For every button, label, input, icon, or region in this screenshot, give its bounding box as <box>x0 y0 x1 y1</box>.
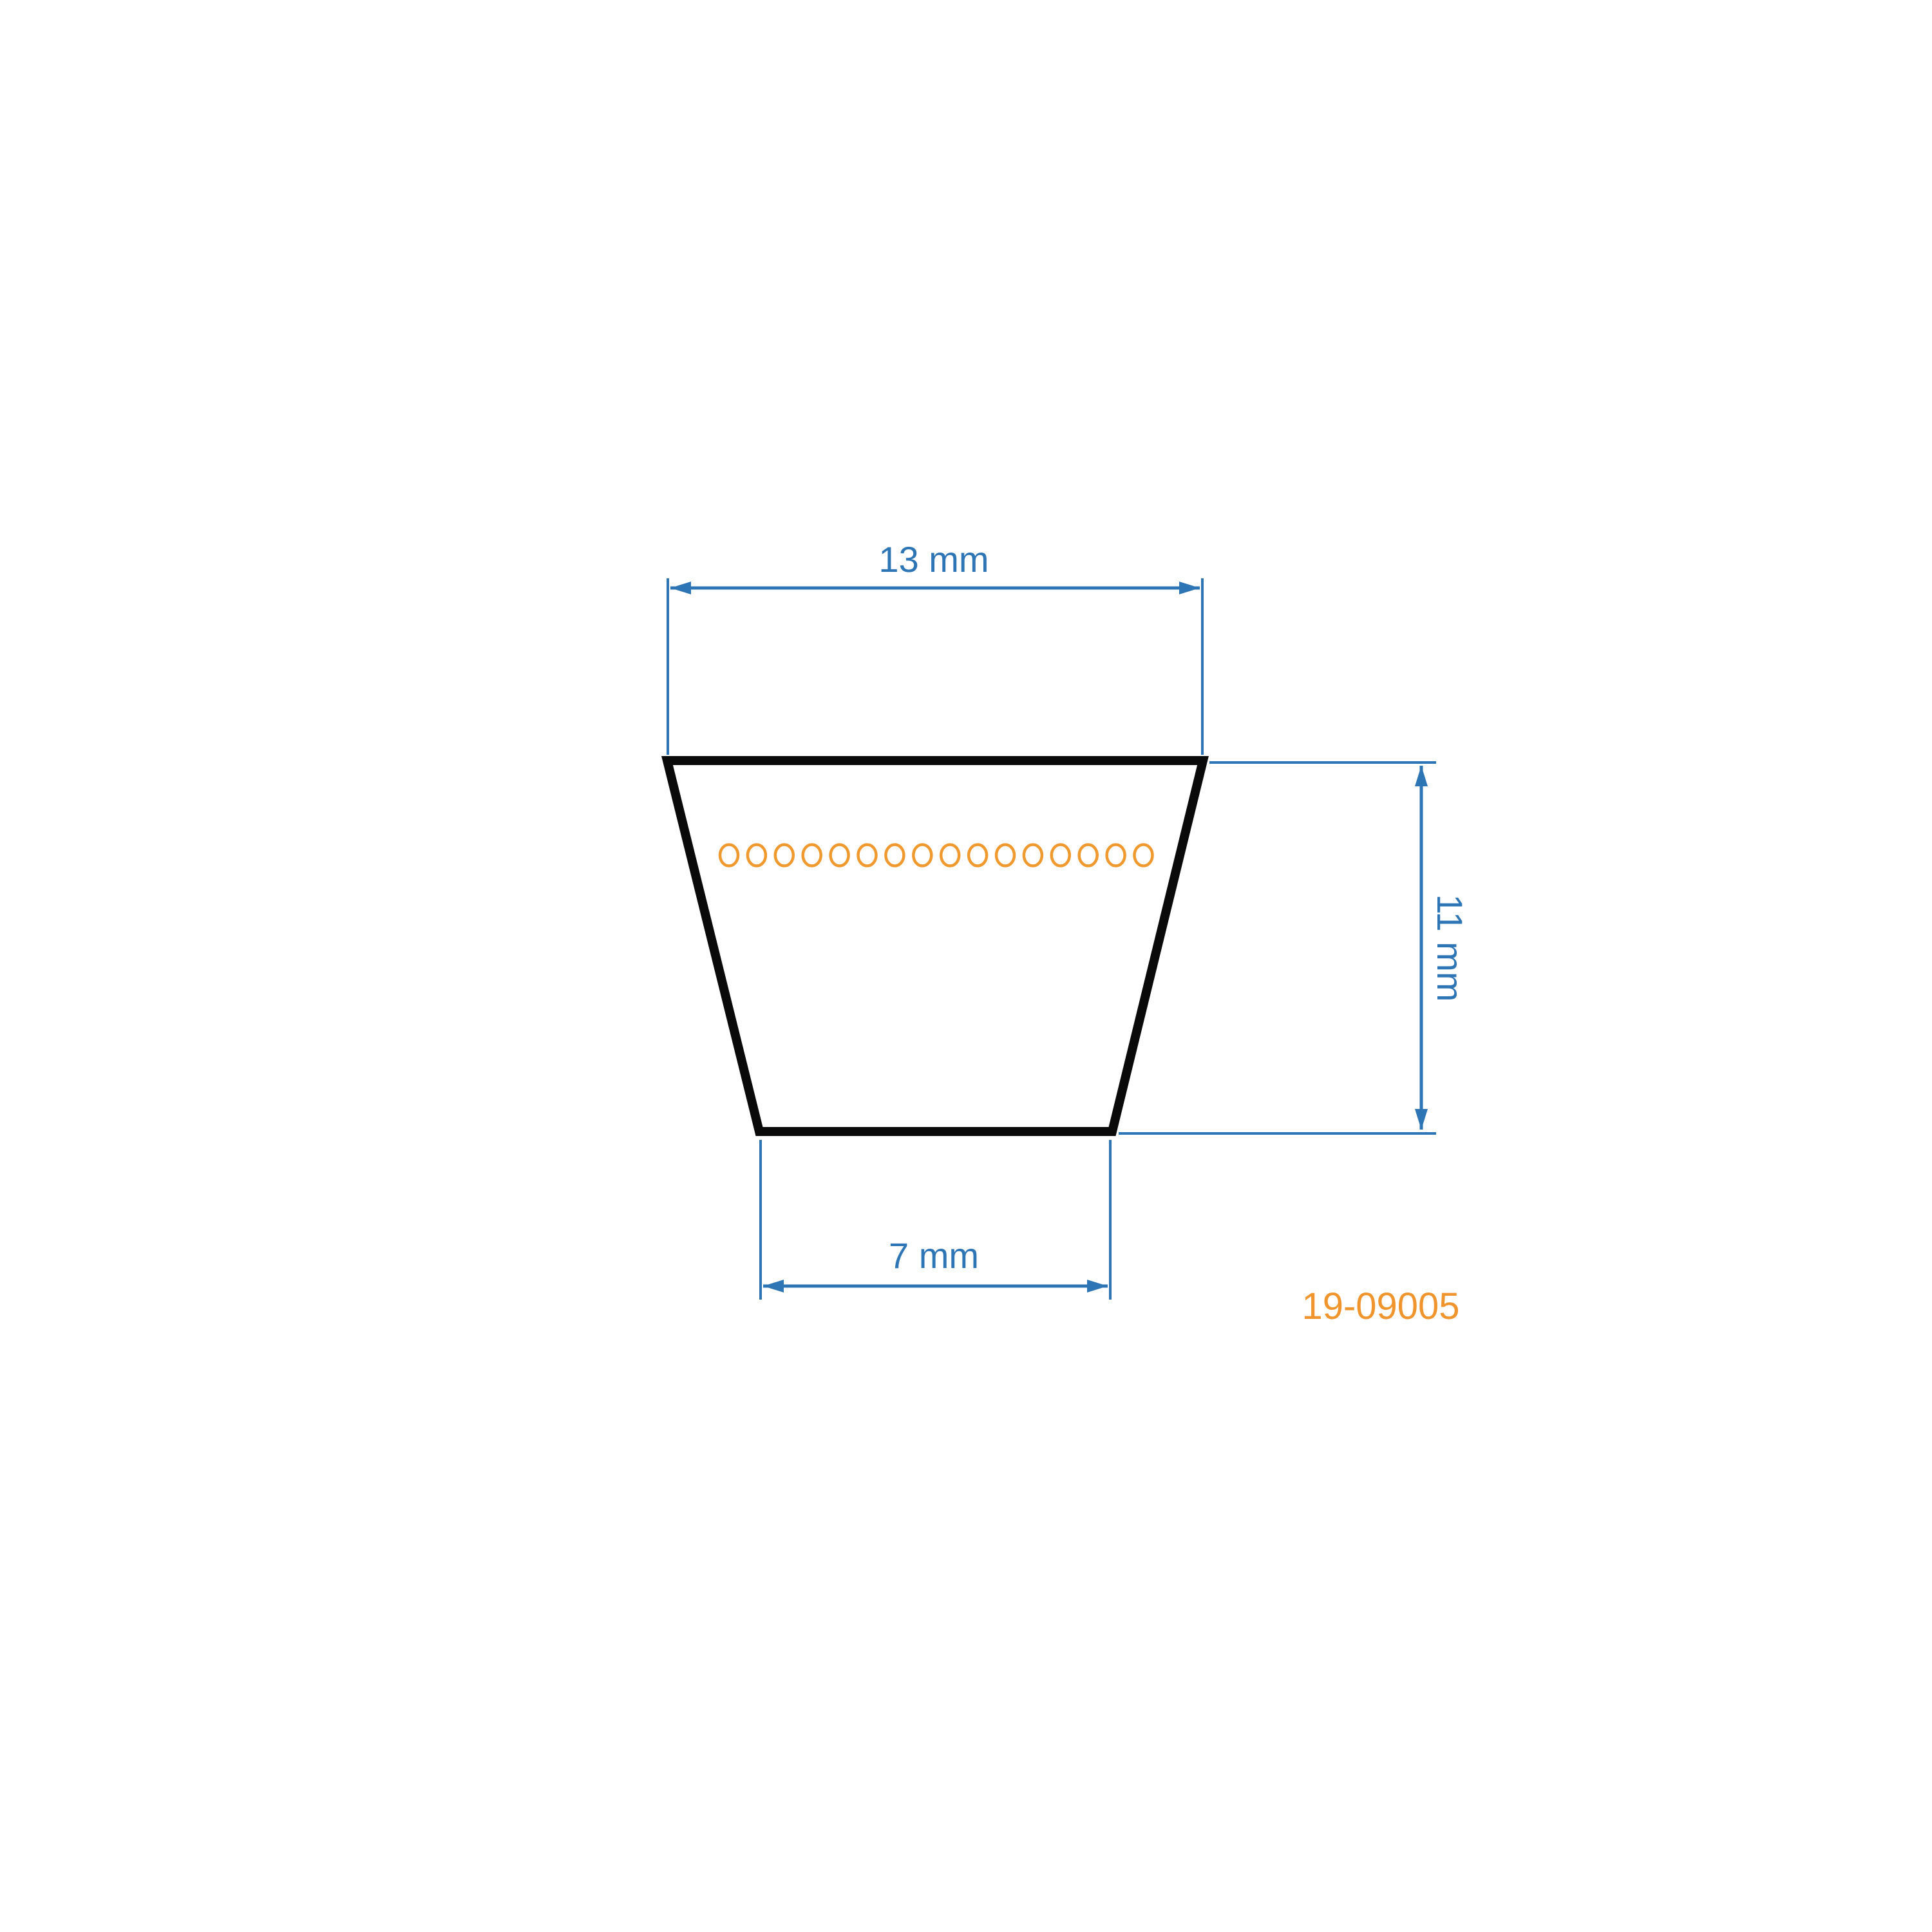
diagram-root: 13 mm7 mm11 mm19-09005 <box>667 539 1470 1327</box>
dimension-label-height: 11 mm <box>1430 895 1470 1002</box>
dimension-arrowhead <box>763 1280 784 1293</box>
dimension-label-top-width: 13 mm <box>878 539 989 580</box>
dimension-label-bottom-width: 7 mm <box>889 1235 979 1276</box>
dimension-arrowhead <box>1415 1109 1428 1130</box>
dimension-arrowhead <box>670 582 691 594</box>
part-number-label: 19-09005 <box>1302 1285 1459 1327</box>
drawing-canvas: 13 mm7 mm11 mm19-09005 <box>0 0 1932 1932</box>
dimension-arrowhead <box>1179 582 1200 594</box>
belt-profile-outline <box>667 761 1203 1132</box>
dimension-arrowhead <box>1087 1280 1108 1293</box>
dimension-arrowhead <box>1415 766 1428 786</box>
dimension-top-width: 13 mm <box>668 539 1202 755</box>
v-belt-cross-section-diagram: 13 mm7 mm11 mm19-09005 <box>0 0 1932 1932</box>
dimension-bottom-width: 7 mm <box>761 1140 1110 1300</box>
